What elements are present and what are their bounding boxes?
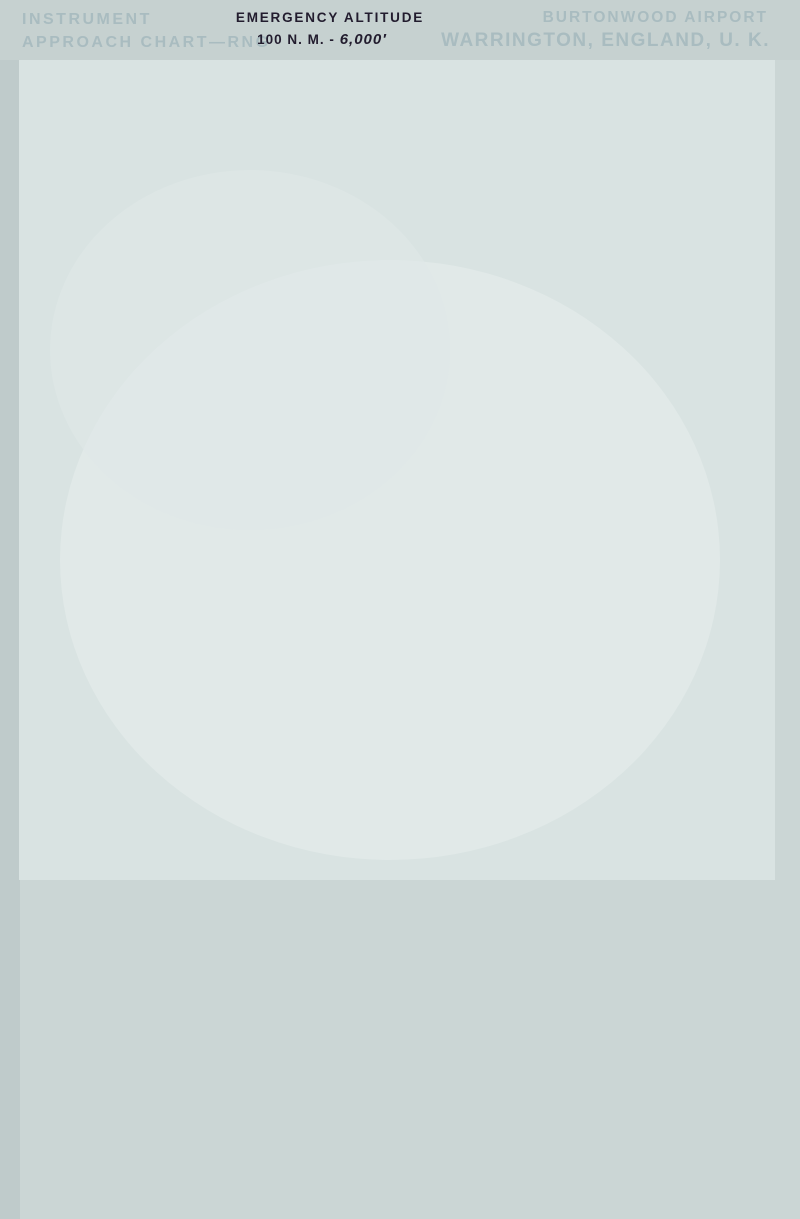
svg-text:APPROACH CHART—RNG: APPROACH CHART—RNG	[22, 34, 271, 51]
svg-text:BURTONWOOD AIRPORT: BURTONWOOD AIRPORT	[543, 9, 768, 26]
svg-text:EMERGENCY ALTITUDE: EMERGENCY ALTITUDE	[236, 10, 424, 25]
svg-text:100 N. M. - 6,000′: 100 N. M. - 6,000′	[257, 31, 387, 48]
svg-text:INSTRUMENT: INSTRUMENT	[22, 11, 152, 28]
svg-text:WARRINGTON, ENGLAND, U. K.: WARRINGTON, ENGLAND, U. K.	[441, 30, 770, 51]
